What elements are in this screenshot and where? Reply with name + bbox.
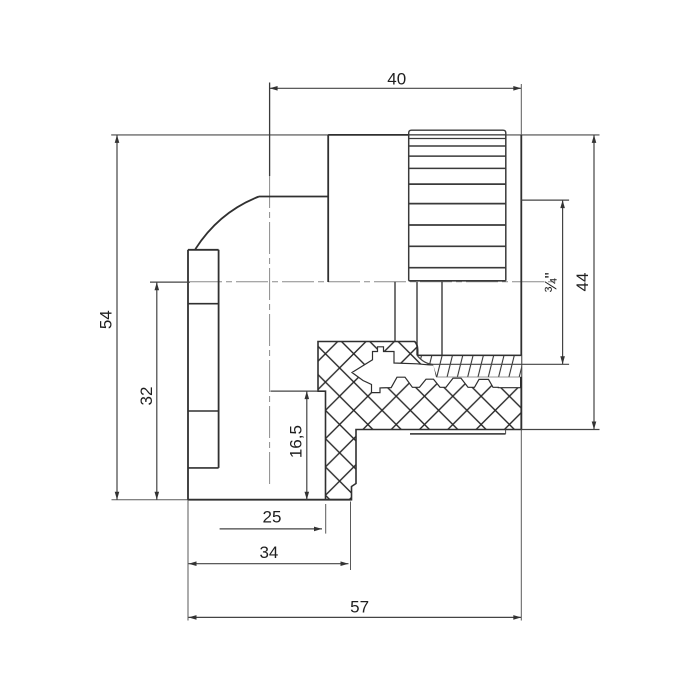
svg-text:25: 25 (263, 508, 282, 527)
svg-text:44: 44 (573, 273, 592, 292)
svg-text:57: 57 (350, 598, 369, 617)
svg-text:16,5: 16,5 (287, 425, 306, 458)
svg-text:54: 54 (97, 310, 116, 329)
svg-text:34: 34 (259, 543, 278, 562)
svg-text:32: 32 (137, 387, 156, 406)
svg-text:¾": ¾" (542, 272, 561, 292)
svg-text:40: 40 (387, 70, 406, 89)
